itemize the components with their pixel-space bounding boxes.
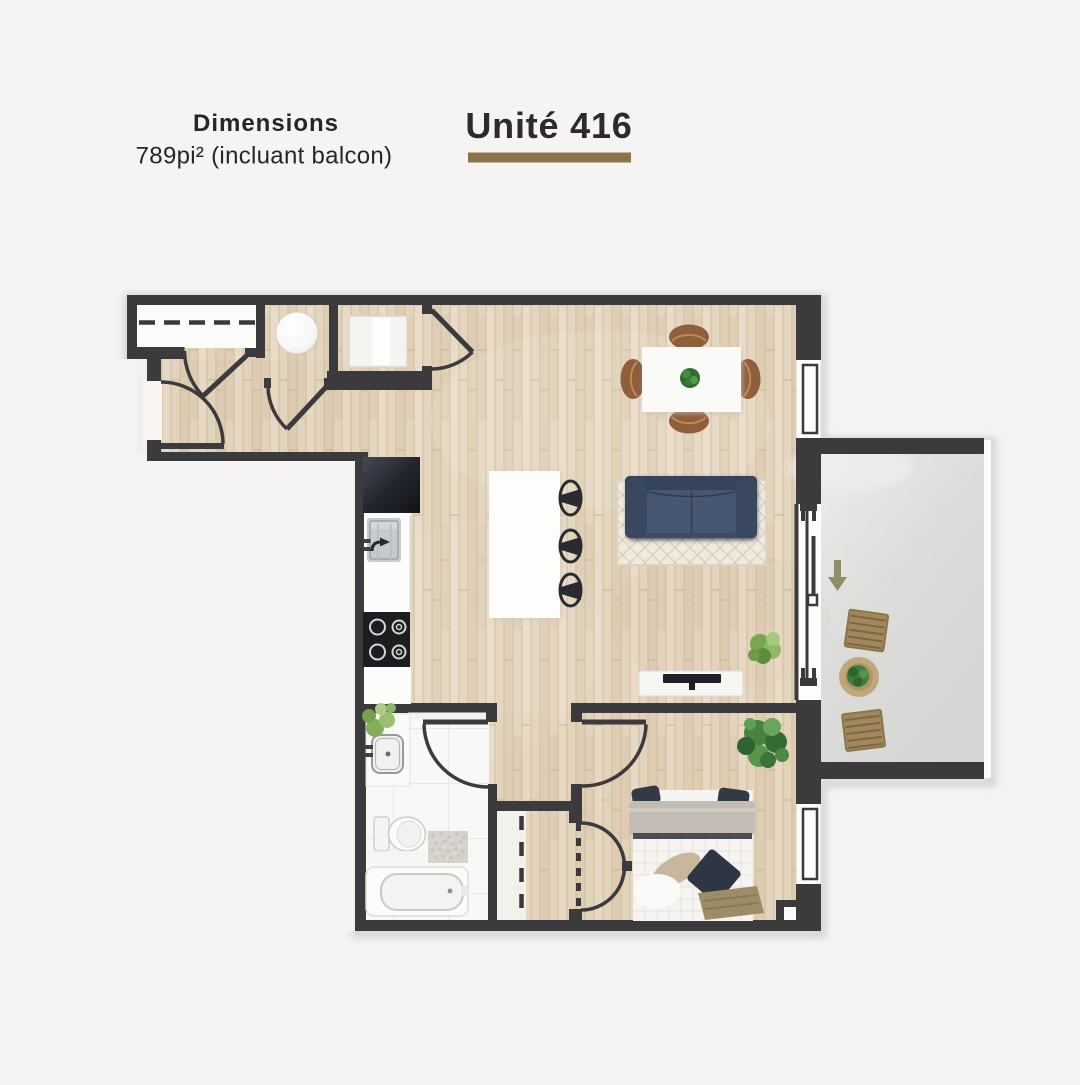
svg-text:789pi² (incluant balcon): 789pi² (incluant balcon) [136,143,393,170]
svg-text:Dimensions: Dimensions [193,110,339,137]
svg-text:Unité 416: Unité 416 [465,105,632,146]
